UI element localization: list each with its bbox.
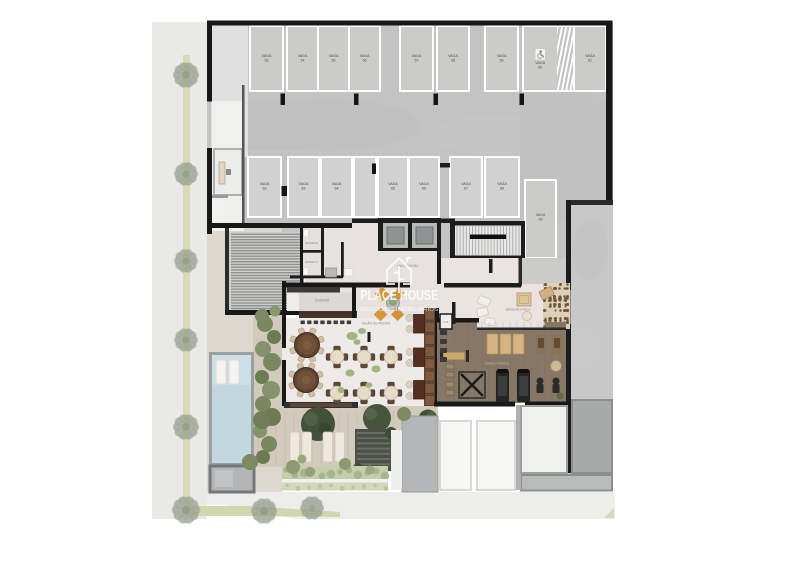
svg-text:BANHO F: BANHO F xyxy=(306,260,318,264)
svg-text:VAGA: VAGA xyxy=(536,213,546,217)
svg-text:62: 62 xyxy=(263,187,267,191)
svg-text:VAGA: VAGA xyxy=(412,54,422,58)
svg-text:VAGA: VAGA xyxy=(535,61,545,65)
svg-text:VAGA: VAGA xyxy=(585,54,595,58)
svg-text:66: 66 xyxy=(422,187,426,191)
svg-text:55: 55 xyxy=(332,59,336,63)
svg-text:BANHO M: BANHO M xyxy=(305,241,318,245)
svg-text:68: 68 xyxy=(500,187,504,191)
svg-text:56: 56 xyxy=(363,59,367,63)
svg-text:58: 58 xyxy=(451,59,455,63)
svg-text:60: 60 xyxy=(538,66,542,70)
svg-text:VAGA: VAGA xyxy=(332,182,342,186)
svg-text:53: 53 xyxy=(265,59,269,63)
svg-text:VAGA: VAGA xyxy=(448,54,458,58)
svg-text:PLACE HOUSE: PLACE HOUSE xyxy=(360,287,438,304)
svg-text:VAGA: VAGA xyxy=(329,54,339,58)
svg-text:SALÃO DE FESTAS: SALÃO DE FESTAS xyxy=(362,321,391,326)
svg-text:57: 57 xyxy=(415,59,419,63)
svg-text:ESPAÇO FITNESS: ESPAÇO FITNESS xyxy=(485,362,509,366)
svg-text:59: 59 xyxy=(500,59,504,63)
svg-text:VAGA: VAGA xyxy=(260,182,270,186)
svg-text:C.PL: C.PL xyxy=(443,320,449,324)
svg-text:67: 67 xyxy=(464,187,468,191)
svg-text:VAGA: VAGA xyxy=(262,54,272,58)
svg-text:69: 69 xyxy=(539,218,543,222)
svg-text:61: 61 xyxy=(588,59,592,63)
svg-text:VAGA: VAGA xyxy=(497,182,507,186)
svg-text:54: 54 xyxy=(301,59,305,63)
svg-text:VAGA: VAGA xyxy=(388,182,398,186)
svg-text:64: 64 xyxy=(335,187,339,191)
svg-text:NEGÓCIOS IMOBILIÁRIOS: NEGÓCIOS IMOBILIÁRIOS xyxy=(360,306,438,313)
svg-text:63: 63 xyxy=(302,187,306,191)
svg-text:VAGA: VAGA xyxy=(497,54,507,58)
svg-text:VAGA: VAGA xyxy=(299,182,309,186)
svg-text:BRINQUEDOTECA: BRINQUEDOTECA xyxy=(506,308,531,312)
svg-text:COZINHA: COZINHA xyxy=(315,299,330,303)
svg-text:VAGA: VAGA xyxy=(298,54,308,58)
svg-text:VAGA: VAGA xyxy=(360,54,370,58)
svg-text:VAGA: VAGA xyxy=(419,182,429,186)
svg-text:VAGA: VAGA xyxy=(461,182,471,186)
svg-text:65: 65 xyxy=(391,187,395,191)
